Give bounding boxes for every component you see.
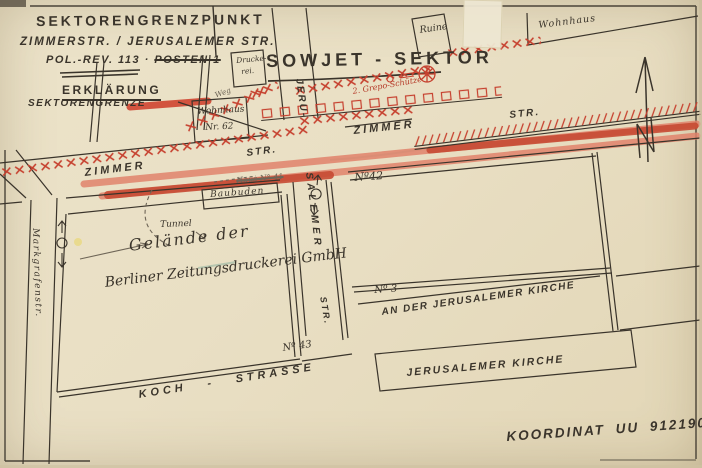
scan-corner-shadow bbox=[0, 0, 26, 7]
map-frame bbox=[5, 6, 696, 461]
yellow-mark bbox=[74, 238, 82, 246]
posten-struck-text: POSTEN 1 bbox=[154, 54, 220, 66]
sector-banner: SOWJET - SEKTOR bbox=[266, 48, 493, 70]
street-lines bbox=[0, 8, 700, 464]
legend-heading: ERKLÄRUNG bbox=[62, 84, 161, 96]
legend-item-sektorengrenze: SEKTORENGRENZE bbox=[28, 99, 146, 109]
map-linework bbox=[0, 0, 702, 468]
druckerei-label-2: rei. bbox=[241, 67, 254, 76]
map-subtitle: ZIMMERSTR. / JERUSALEMER STR. bbox=[20, 37, 275, 49]
wohnhaus62-number: Nr. 62 bbox=[205, 123, 234, 133]
tape-patch bbox=[462, 0, 502, 49]
pol-rev-line: POL.-REV. 113 · POSTEN 1 bbox=[46, 55, 221, 66]
scanned-map-sheet: SEKTORENGRENZPUNKT ZIMMERSTR. / JERUSALE… bbox=[0, 0, 702, 468]
sector-boundary-band bbox=[84, 124, 697, 196]
markgrafenstr-label: Markgrafenstr. bbox=[30, 228, 42, 318]
n3-label: Nº 3 bbox=[374, 284, 398, 296]
n42-label: Nº42 bbox=[354, 170, 383, 183]
pol-rev-text: POL.-REV. 113 · bbox=[46, 54, 150, 66]
map-title: SEKTORENGRENZPUNKT bbox=[36, 12, 265, 28]
